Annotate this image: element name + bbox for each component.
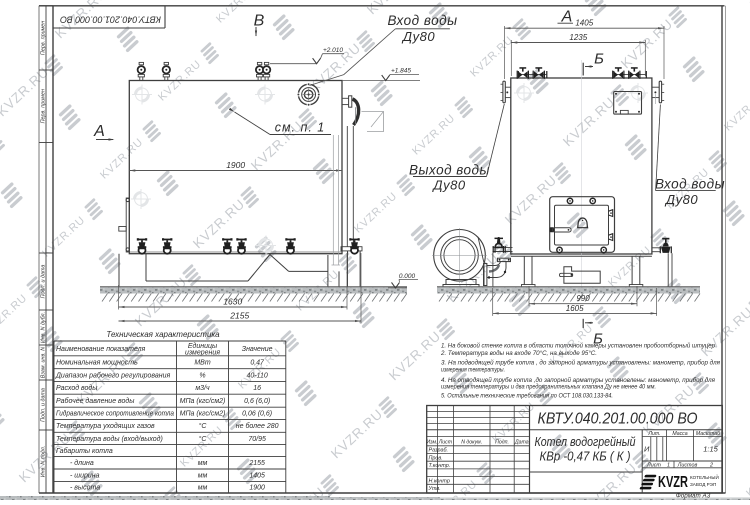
svg-text:3. На подводящей трубе котла: 3. На подводящей трубе котла , до запорн… bbox=[441, 359, 720, 367]
svg-text:Гидравлическое сопротивление к: Гидравлическое сопротивление котла bbox=[56, 410, 174, 418]
svg-text:КВр -0,47 КБ ( К ): КВр -0,47 КБ ( К ) bbox=[540, 449, 631, 464]
svg-text:1:15: 1:15 bbox=[703, 445, 718, 454]
svg-text:Подп.: Подп. bbox=[495, 440, 509, 446]
svg-text:Рабочее давление воды: Рабочее давление воды bbox=[56, 397, 135, 405]
svg-text:Габариты котла: Габариты котла bbox=[56, 447, 113, 455]
svg-text:мм: мм bbox=[198, 460, 208, 467]
svg-text:2155: 2155 bbox=[229, 311, 249, 321]
svg-text:Номинальная мощность: Номинальная мощность bbox=[56, 360, 138, 367]
svg-text:%: % bbox=[199, 372, 205, 379]
svg-text:KVZR.RU: KVZR.RU bbox=[582, 460, 640, 500]
svg-text:KVZR.RU: KVZR.RU bbox=[744, 454, 750, 500]
svg-text:Лит.: Лит. bbox=[647, 431, 660, 437]
svg-text:KVZR.RU: KVZR.RU bbox=[410, 112, 458, 158]
svg-text:2155: 2155 bbox=[248, 460, 265, 467]
svg-text:0.000: 0.000 bbox=[399, 273, 416, 280]
svg-text:Диапазон рабочего регулировани: Диапазон рабочего регулирования bbox=[55, 371, 171, 379]
svg-text:1900: 1900 bbox=[249, 485, 265, 492]
svg-text:1605: 1605 bbox=[566, 304, 584, 313]
svg-text:+1.845: +1.845 bbox=[391, 68, 411, 75]
svg-text:1405: 1405 bbox=[249, 473, 265, 480]
svg-text:KVZR.RU: KVZR.RU bbox=[328, 406, 386, 461]
svg-text:Подп. и дата: Подп. и дата bbox=[41, 265, 47, 299]
svg-text:МВт: МВт bbox=[194, 360, 211, 367]
svg-text:Лист: Лист bbox=[438, 440, 453, 446]
svg-text:Масса: Масса bbox=[672, 431, 687, 437]
svg-text:Инв. N подл.: Инв. N подл. bbox=[41, 446, 47, 478]
svg-text:Инв. N дубл.: Инв. N дубл. bbox=[41, 312, 47, 343]
svg-text:°С: °С bbox=[199, 422, 208, 430]
svg-text:70/95: 70/95 bbox=[248, 436, 266, 443]
svg-text:Перв. примен: Перв. примен bbox=[41, 21, 47, 55]
svg-text:KVZR.RU: KVZR.RU bbox=[98, 136, 146, 182]
svg-text:Изм.: Изм. bbox=[426, 440, 437, 446]
svg-text:KVZR.RU: KVZR.RU bbox=[722, 88, 750, 134]
svg-text:40-110: 40-110 bbox=[247, 372, 268, 379]
svg-text:KVZR.RU: KVZR.RU bbox=[618, 16, 676, 71]
svg-text:KVZR.RU: KVZR.RU bbox=[352, 190, 400, 236]
svg-text:Расход воды: Расход воды bbox=[56, 384, 98, 392]
svg-text:+2.010: +2.010 bbox=[323, 47, 343, 54]
svg-text:см. п. 1: см. п. 1 bbox=[275, 121, 326, 135]
svg-text:1630: 1630 bbox=[223, 297, 242, 307]
svg-text:Перв. примен: Перв. примен bbox=[41, 89, 47, 123]
svg-text:Формат А3: Формат А3 bbox=[676, 493, 711, 500]
svg-text:KVZR.RU: KVZR.RU bbox=[698, 304, 750, 359]
svg-text:В: В bbox=[254, 13, 265, 30]
svg-text:1405: 1405 bbox=[575, 19, 593, 28]
svg-text:Подп. и дата: Подп. и дата bbox=[41, 388, 47, 422]
svg-text:Значение: Значение bbox=[242, 346, 273, 353]
svg-text:МПа (кгс/см2): МПа (кгс/см2) bbox=[180, 398, 226, 405]
svg-text:990: 990 bbox=[576, 294, 590, 303]
svg-text:м3/ч: м3/ч bbox=[195, 385, 210, 392]
svg-text:- длина: - длина bbox=[70, 459, 94, 467]
svg-text:Ду80: Ду80 bbox=[664, 192, 699, 207]
svg-text:Взам. инв. N: Взам. инв. N bbox=[41, 347, 47, 379]
svg-text:КВТУ.040.201.00.000 ВО: КВТУ.040.201.00.000 ВО bbox=[59, 14, 161, 25]
svg-text:5. Остальные технические треб: 5. Остальные технические требования по О… bbox=[441, 392, 613, 400]
svg-text:МПа (кгс/см2): МПа (кгс/см2) bbox=[180, 411, 226, 418]
svg-text:Ду80: Ду80 bbox=[431, 178, 466, 193]
svg-text:И: И bbox=[644, 445, 650, 454]
svg-text:не более 280: не более 280 bbox=[236, 422, 279, 430]
svg-text:KVZR.RU: KVZR.RU bbox=[0, 292, 30, 338]
svg-text:0,6 (6,0): 0,6 (6,0) bbox=[244, 398, 270, 405]
svg-text:1900: 1900 bbox=[226, 160, 245, 170]
svg-text:KVZR: KVZR bbox=[658, 474, 688, 491]
svg-text:КВТУ.040.201.00.000 ВО: КВТУ.040.201.00.000 ВО bbox=[538, 411, 698, 428]
svg-text:°С: °С bbox=[199, 435, 208, 443]
svg-text:N докум.: N докум. bbox=[461, 440, 482, 446]
svg-text:Утв.: Утв. bbox=[428, 486, 441, 492]
svg-text:2. Температура воды на входе: 2. Температура воды на входе 70°С, на вы… bbox=[440, 349, 597, 357]
svg-text:Температура воды (вход/выход): Температура воды (вход/выход) bbox=[56, 435, 163, 443]
svg-text:Масштаб: Масштаб bbox=[696, 431, 721, 437]
svg-text:мм: мм bbox=[198, 473, 208, 480]
svg-text:Дата: Дата bbox=[514, 440, 529, 446]
svg-text:KVZR.RU: KVZR.RU bbox=[560, 94, 618, 149]
svg-text:KVZR.RU: KVZR.RU bbox=[606, 244, 654, 290]
svg-text:1235: 1235 bbox=[569, 33, 587, 42]
svg-text:измерения температуры и два: измерения температуры и два предохраните… bbox=[441, 382, 656, 390]
svg-text:1. На боковой стенке котла в: 1. На боковой стенке котла в области топ… bbox=[441, 341, 715, 349]
svg-text:0,47: 0,47 bbox=[250, 360, 265, 367]
svg-text:Наименование показателя: Наименование показателя bbox=[56, 346, 146, 353]
svg-text:KVZR.RU: KVZR.RU bbox=[468, 34, 516, 80]
svg-text:KVZR.RU: KVZR.RU bbox=[386, 328, 444, 383]
svg-text:Техническая характеристика: Техническая характеристика bbox=[106, 330, 220, 339]
svg-text:Лист: Лист bbox=[646, 462, 661, 468]
svg-text:Выход воды: Выход воды bbox=[409, 163, 490, 178]
svg-text:Б: Б bbox=[594, 51, 604, 68]
svg-text:Т.контр.: Т.контр. bbox=[429, 463, 451, 469]
svg-text:- высота: - высота bbox=[70, 485, 100, 492]
svg-text:Разраб.: Разраб. bbox=[429, 448, 449, 454]
svg-text:Вход воды: Вход воды bbox=[655, 177, 725, 192]
svg-text:измерения: измерения bbox=[185, 349, 220, 356]
svg-text:Пров.: Пров. bbox=[429, 455, 443, 461]
svg-text:KVZR.RU: KVZR.RU bbox=[526, 0, 574, 2]
svg-text:Листов: Листов bbox=[677, 462, 698, 468]
svg-text:Котел водогрейный: Котел водогрейный bbox=[535, 434, 636, 449]
svg-text:2: 2 bbox=[709, 462, 713, 468]
svg-text:Температура уходящих газов: Температура уходящих газов bbox=[56, 422, 155, 430]
svg-text:измерения температуры.: измерения температуры. bbox=[441, 366, 505, 373]
svg-text:ЗАВОД РЭП: ЗАВОД РЭП bbox=[690, 482, 716, 487]
svg-text:Н.контр: Н.контр bbox=[429, 478, 450, 484]
svg-text:КОТЕЛЬНЫЙ: КОТЕЛЬНЫЙ bbox=[690, 473, 719, 480]
svg-text:Вход воды: Вход воды bbox=[387, 13, 457, 28]
svg-text:мм: мм bbox=[198, 485, 208, 492]
svg-text:- ширина: - ширина bbox=[70, 473, 100, 480]
svg-text:Ду80: Ду80 bbox=[401, 29, 436, 44]
svg-text:16: 16 bbox=[253, 385, 261, 392]
svg-text:1: 1 bbox=[667, 462, 670, 468]
svg-text:А: А bbox=[93, 123, 105, 140]
svg-text:0,06 (0,6): 0,06 (0,6) bbox=[242, 411, 272, 418]
